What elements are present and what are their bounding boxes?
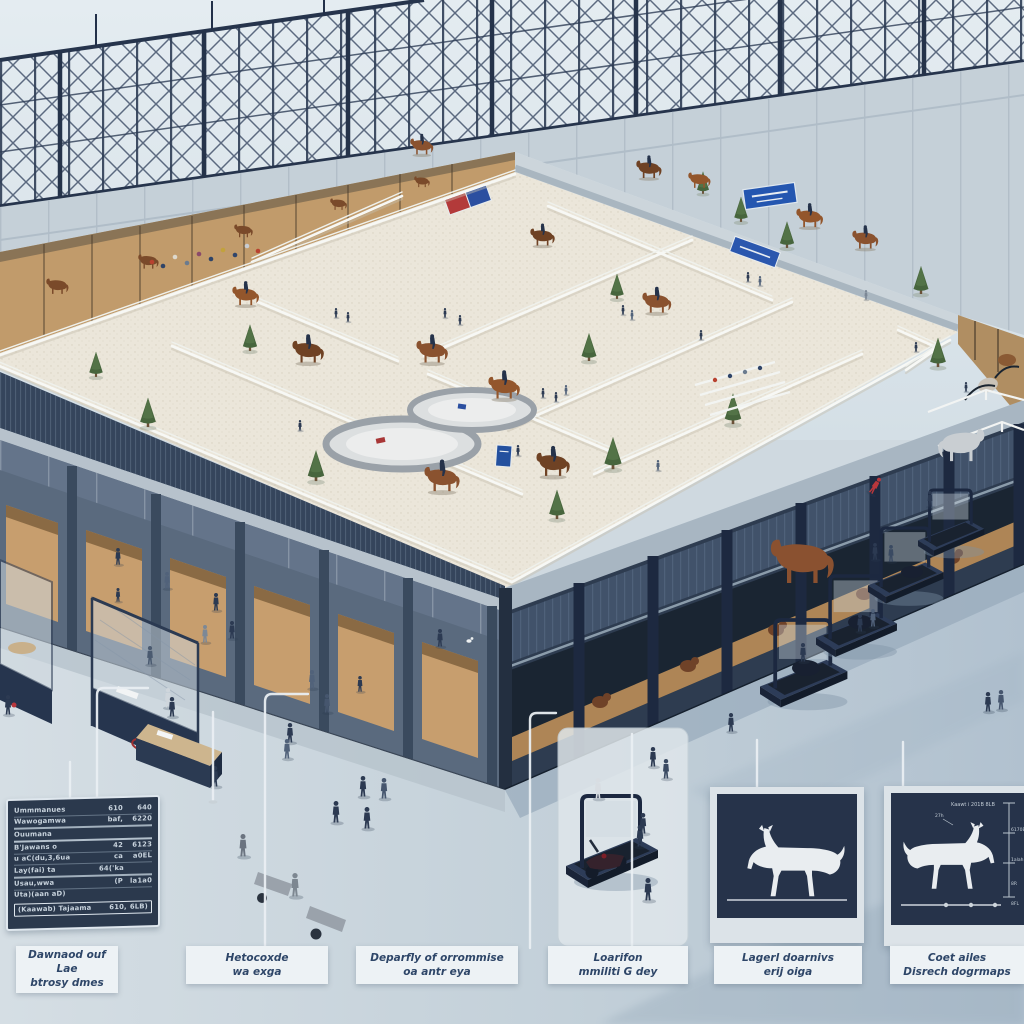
horse-gait-figure — [717, 794, 857, 918]
dressage-sign — [496, 445, 512, 467]
callout-label-3: Deparfly of orrommise oa antr eya — [356, 946, 518, 984]
callout-label-line: Coet ailes — [894, 951, 1020, 965]
screenshot-root: Ummmanues610640 Wawogamwabaf,6220 Ouuman… — [0, 0, 1024, 1024]
callout-label-1: Dawnaod ouf Lae btrosy dmes — [16, 946, 118, 993]
info-board: Ummmanues610640 Wawogamwabaf,6220 Ouuman… — [6, 795, 160, 931]
callout-label-line: erij oiga — [718, 965, 858, 979]
callout-label-line: btrosy dmes — [20, 976, 114, 990]
callout-label-2: Hetocoxde wa exga — [186, 946, 328, 984]
callout-label-line: mmiliti G dey — [552, 965, 684, 979]
horse-measurement-figure: Kaawt i 201B 8LB 6170B 1alah 8R 8FL 27h — [891, 793, 1024, 925]
horse-measurement-panel: Kaawt i 201B 8LB 6170B 1alah 8R 8FL 27h — [884, 786, 1024, 946]
measure-head-label: 27h — [935, 813, 944, 819]
callout-label-6: Coet ailes Disrech dogrmaps — [890, 946, 1024, 984]
info-board-row: Uta)(aan aD) — [14, 887, 152, 901]
measure-top-label: Kaawt i 201B 8LB — [951, 802, 995, 808]
info-board-footer: (Kaawab) Tajaama610,6LB) — [14, 900, 152, 916]
callout-label-5: Lagerl doarnivs erij oiga — [714, 946, 862, 984]
measure-tick: 8R — [1011, 881, 1017, 887]
callout-label-line: Loarifon — [552, 951, 684, 965]
treadmill-display-card — [558, 728, 688, 946]
callout-label-line: Deparfly of orrommise — [360, 951, 514, 965]
callout-label-line: oa antr eya — [360, 965, 514, 979]
measure-tick: 6170B — [1011, 827, 1024, 833]
measure-tick: 1alah — [1011, 857, 1024, 863]
callout-label-line: Hetocoxde — [190, 951, 324, 965]
callout-label-line: Lagerl doarnivs — [718, 951, 858, 965]
callout-label-line: Dawnaod ouf Lae — [20, 948, 114, 976]
callout-label-line: wa exga — [190, 965, 324, 979]
callout-label-4: Loarifon mmiliti G dey — [548, 946, 688, 984]
horse-gait-panel — [710, 787, 864, 943]
measure-tick: 8FL — [1011, 901, 1019, 907]
callout-label-line: Disrech dogrmaps — [894, 965, 1020, 979]
